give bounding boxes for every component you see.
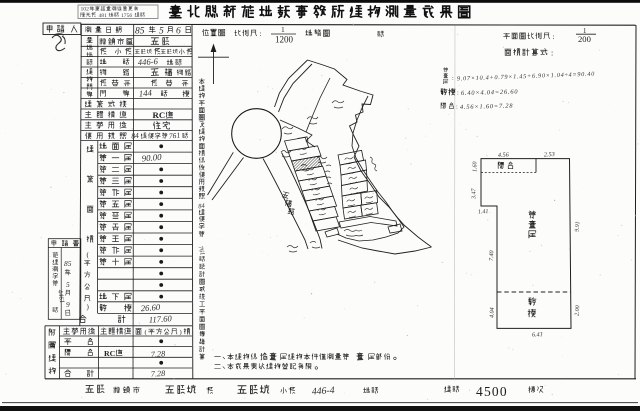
svg-text:6.41: 6.41 [532, 331, 543, 338]
svg-text:1: 1 [281, 25, 285, 34]
svg-text:(: ( [145, 329, 147, 336]
svg-text:4.56: 4.56 [498, 151, 510, 159]
svg-text::: : [260, 29, 262, 38]
svg-text:2.53: 2.53 [544, 151, 555, 159]
svg-text:7.40: 7.40 [488, 250, 495, 261]
svg-text::: : [553, 32, 555, 41]
svg-text:1.41: 1.41 [478, 208, 489, 216]
svg-text:4.56×1.60=7.28: 4.56×1.60=7.28 [460, 103, 514, 111]
svg-text:): ) [180, 329, 182, 336]
svg-text:4.04: 4.04 [489, 307, 496, 318]
svg-text:RC: RC [104, 349, 116, 358]
svg-text::: : [456, 104, 458, 111]
svg-text:117.60: 117.60 [148, 313, 172, 325]
svg-text:90.00: 90.00 [141, 152, 162, 164]
svg-text:7.28: 7.28 [151, 349, 166, 359]
svg-text:3.47: 3.47 [471, 188, 478, 201]
svg-text:9.91: 9.91 [575, 221, 582, 232]
svg-text:1200: 1200 [275, 35, 294, 45]
svg-text:446-4: 446-4 [311, 385, 335, 398]
svg-text::: : [551, 49, 553, 58]
svg-text:2.00: 2.00 [575, 305, 582, 316]
svg-text::: : [457, 90, 459, 97]
svg-text:84: 84 [131, 131, 140, 141]
svg-text:4500: 4500 [476, 384, 508, 399]
svg-text:26.60: 26.60 [140, 302, 161, 313]
svg-text:1.60: 1.60 [473, 162, 479, 173]
svg-text:85: 85 [135, 27, 145, 37]
svg-text:RC: RC [153, 110, 166, 120]
svg-text:5: 5 [159, 27, 164, 37]
svg-text:144: 144 [138, 87, 153, 98]
svg-text:5: 5 [66, 280, 70, 289]
svg-text:481: 481 [99, 13, 108, 19]
svg-text:761: 761 [168, 131, 180, 141]
svg-text:102: 102 [81, 7, 90, 13]
svg-text:85: 85 [64, 259, 72, 268]
svg-text:1756: 1756 [121, 13, 132, 19]
svg-text:200: 200 [578, 34, 591, 44]
svg-text:9: 9 [66, 300, 70, 309]
svg-text:6: 6 [176, 26, 181, 36]
